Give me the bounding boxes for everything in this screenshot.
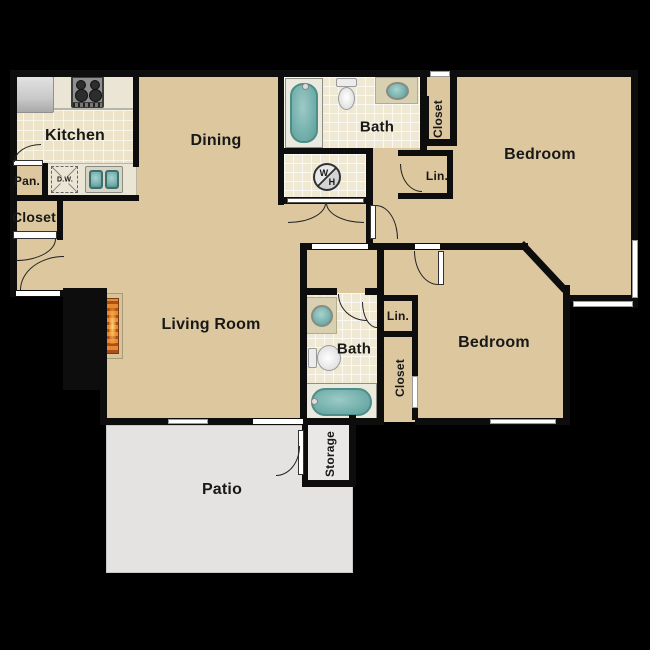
hall-floor bbox=[300, 248, 384, 293]
bath1-label: Bath bbox=[360, 119, 394, 136]
closet2-opening bbox=[412, 376, 418, 408]
bedroom2-window bbox=[490, 419, 556, 424]
water-heater-w: W bbox=[320, 168, 329, 178]
bathtub1-icon bbox=[285, 78, 323, 148]
wall-storage-bottom bbox=[302, 480, 355, 487]
bedroom1-label: Bedroom bbox=[504, 146, 576, 164]
dining-label: Dining bbox=[191, 132, 242, 150]
pantry-label: Pan. bbox=[14, 174, 40, 188]
patio-label: Patio bbox=[202, 481, 242, 499]
wall-top bbox=[10, 70, 638, 77]
living-room-floor bbox=[100, 248, 306, 422]
bedroom2-door-opening bbox=[415, 244, 440, 249]
lin2-label: Lin. bbox=[387, 309, 409, 323]
closet1-opening bbox=[430, 71, 450, 77]
wall-bath2-bottom bbox=[300, 418, 384, 425]
bedroom2-label: Bedroom bbox=[458, 334, 530, 352]
toilet1-icon bbox=[336, 78, 358, 112]
kitchen-sink-icon bbox=[85, 166, 123, 193]
closet-left-bifold-door bbox=[13, 231, 57, 239]
closet-left-label: Closet bbox=[12, 209, 56, 225]
bathtub2-icon bbox=[306, 383, 377, 421]
bedroom1-south-window bbox=[573, 301, 633, 307]
storage-label: Storage bbox=[323, 431, 337, 477]
wall-closetleft-right bbox=[57, 195, 63, 240]
bedroom1-east-window bbox=[632, 240, 638, 298]
wall-bath1-left bbox=[278, 70, 284, 205]
water-heater-h: H bbox=[329, 177, 336, 187]
wall-bath2-top-a bbox=[302, 288, 337, 295]
chimney-mass bbox=[63, 288, 107, 390]
bath2-label: Bath bbox=[337, 341, 371, 358]
dishwasher-label: D.W. bbox=[56, 177, 74, 184]
wall-wh-top bbox=[278, 148, 373, 154]
wall-bath2-right bbox=[377, 250, 384, 425]
bedroom2-door-leaf bbox=[438, 251, 444, 285]
wall-kitchen-right bbox=[133, 70, 139, 167]
wall-pantry-bottom bbox=[10, 195, 48, 201]
floor-plan: D.W. W H bbox=[0, 0, 650, 650]
kitchen-label: Kitchen bbox=[45, 127, 105, 145]
stove-icon bbox=[71, 76, 104, 108]
dishwasher-icon: D.W. bbox=[51, 166, 78, 193]
entry-door-opening bbox=[16, 291, 60, 296]
wall-bath2-left bbox=[300, 243, 307, 425]
patio-door-opening bbox=[253, 419, 303, 424]
closet1-label: Closet bbox=[431, 100, 445, 138]
wall-lin1-top bbox=[398, 150, 453, 156]
wall-bath2-top-b bbox=[365, 288, 384, 295]
bath2-sink-icon bbox=[306, 297, 337, 334]
refrigerator-icon bbox=[12, 76, 54, 113]
living-hall-opening bbox=[312, 244, 368, 249]
wall-closet2-right-a bbox=[412, 331, 418, 376]
wall-storage-right bbox=[349, 415, 356, 487]
living-room-label: Living Room bbox=[161, 316, 260, 334]
wall-bedroom2-right bbox=[563, 285, 570, 425]
closet2-label: Closet bbox=[393, 359, 407, 397]
wall-closet1-right bbox=[450, 70, 457, 146]
wall-lin1-bottom bbox=[398, 193, 453, 199]
bath1-sink-icon bbox=[375, 77, 418, 104]
wall-closet2-right-b bbox=[412, 408, 418, 420]
water-heater-icon: W H bbox=[313, 163, 341, 191]
living-window bbox=[168, 419, 208, 424]
lin1-label: Lin. bbox=[426, 169, 448, 183]
